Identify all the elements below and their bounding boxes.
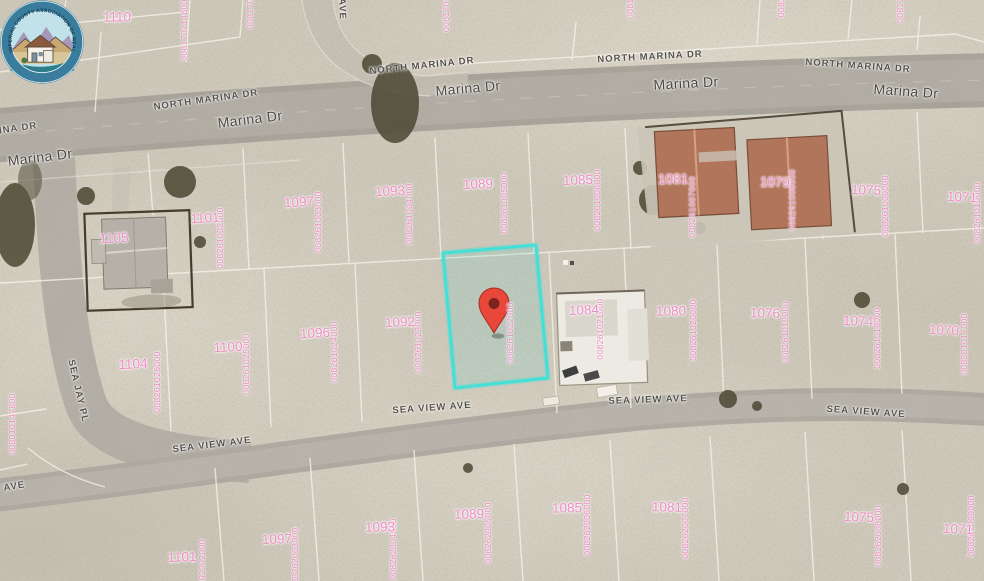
- parcel-number-label: 1085: [552, 501, 582, 516]
- parcel-number-label: 1097: [262, 531, 293, 547]
- apn-label: 008261020000: [688, 299, 698, 361]
- parcel-number-label: 1080: [656, 303, 686, 319]
- apn-label: 0081701: [245, 0, 255, 29]
- parcel-number-label: 1092: [385, 314, 416, 330]
- parcel-number-label: 1093: [365, 519, 395, 535]
- parcel-number-label: 1075: [844, 509, 875, 525]
- apn-label: 008261022000: [505, 302, 515, 364]
- parcel-number-label: 1105: [99, 230, 129, 246]
- parcel-number-label: 1079: [760, 174, 790, 190]
- parcel-number-label: 1101: [167, 549, 197, 565]
- apn-label: 008261009000: [880, 175, 890, 237]
- realtor-logo-badge: IMPERIAL COUNTY ASSOCIATION OF REALTORS: [0, 0, 84, 84]
- parcel-number-label: 1081: [658, 171, 688, 187]
- parcel-number-label: 1085: [563, 172, 594, 188]
- apn-label: 008261018000: [872, 307, 882, 369]
- apn-label: 008261006000: [592, 169, 602, 231]
- apn-label: 008262002000: [197, 539, 207, 581]
- apn-label: 0081: [776, 0, 786, 17]
- parcel-number-label: 1074: [843, 313, 874, 329]
- parcel-number-label: 1071: [947, 189, 978, 206]
- parcel-number-label: 1081: [652, 499, 682, 515]
- street-label: Marina Dr: [653, 73, 719, 92]
- apn-label: 008261025000: [241, 333, 251, 395]
- parcel-number-label: 1096: [300, 325, 331, 342]
- apn-label: 008262006000: [582, 494, 592, 556]
- parcel-number-label: 1093: [375, 183, 406, 200]
- apn-label: 0081701: [441, 0, 451, 32]
- apn-label: 008261003000: [313, 191, 323, 253]
- apn-label: 008262005000: [483, 502, 493, 564]
- apn-label: 008170214800: [179, 0, 189, 61]
- street-label: AVE: [336, 0, 348, 20]
- apn-label: 008261007000: [687, 176, 697, 238]
- parcel-number-label: 1071: [943, 521, 974, 538]
- map-canvas[interactable]: Marina DrMarina DrMarina DrMarina DrMari…: [0, 0, 984, 581]
- logo-bush: [21, 58, 27, 64]
- pin-shadow: [492, 333, 505, 338]
- apn-label: 008261017000: [959, 313, 969, 375]
- apn-label: 008010147800: [7, 393, 17, 455]
- apn-label: 008261024000: [329, 321, 339, 383]
- apn-label: 008261005000: [499, 172, 509, 234]
- parcel-number-label: 1075: [851, 182, 882, 198]
- apn-label: 00817: [625, 0, 635, 19]
- parcel-number-label: 1089: [454, 506, 484, 522]
- parcel-number-label: 1101: [190, 210, 220, 226]
- parcel-number-label: 1076: [750, 305, 780, 321]
- apn-label: 008262008000: [873, 505, 883, 567]
- apn-label: 008261026000: [152, 351, 162, 413]
- parcel-number-label: 1104: [118, 356, 148, 372]
- parcel-number-label: 1089: [463, 176, 494, 192]
- apn-label: 008261004000: [404, 183, 414, 245]
- parcel-number-label: 1070: [929, 322, 960, 339]
- parcel-number-label: 1097: [284, 194, 315, 211]
- parcel-number-label: 1110: [103, 10, 131, 25]
- parcel-number-label: 1084: [569, 302, 600, 318]
- apn-label: 00817: [895, 0, 905, 23]
- parcel-number-label: 1100: [213, 339, 243, 355]
- apn-label: 008261019000: [780, 301, 790, 363]
